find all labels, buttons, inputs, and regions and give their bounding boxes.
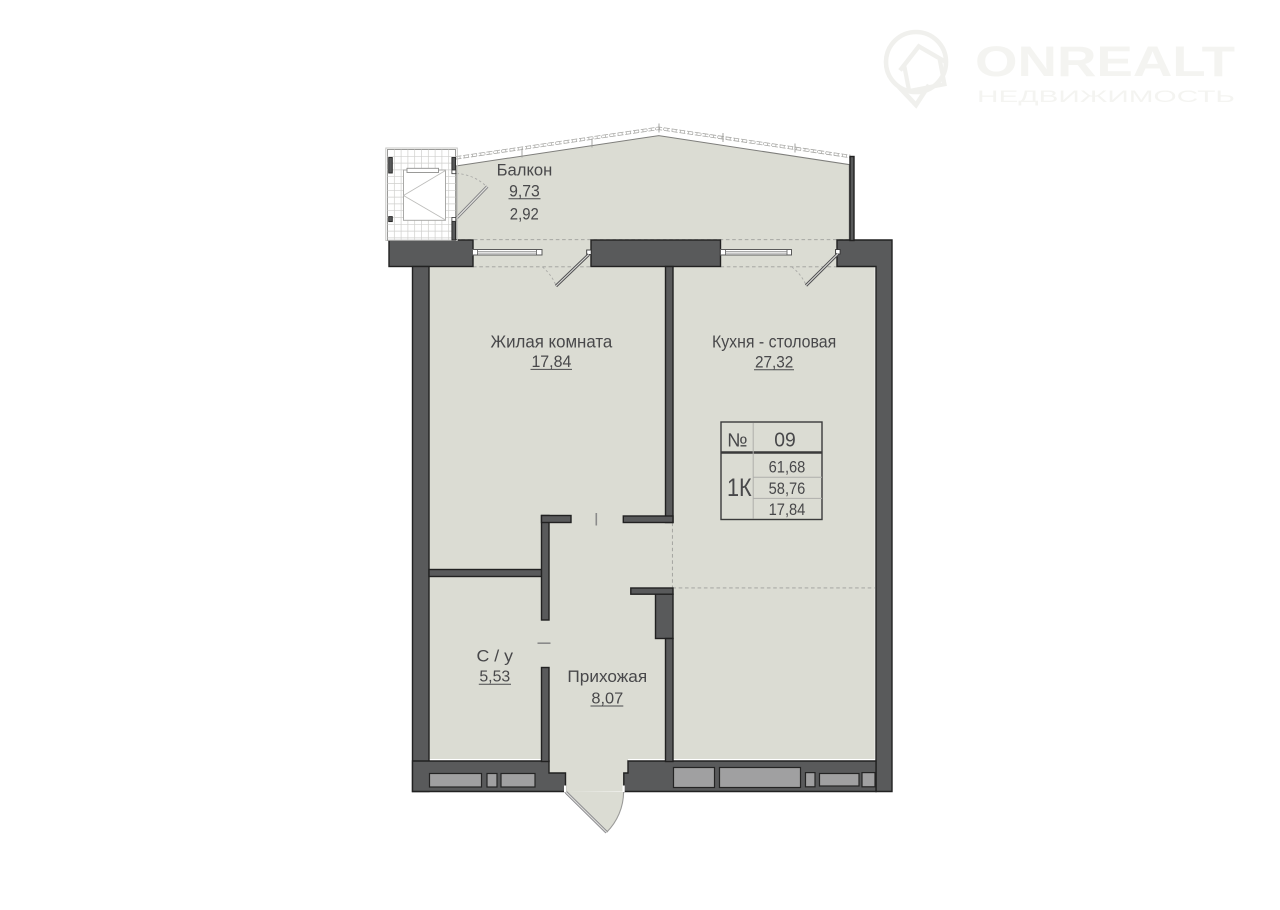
svg-text:2,92: 2,92 — [510, 206, 539, 224]
svg-text:9,73: 9,73 — [509, 183, 540, 201]
svg-text:№: № — [727, 431, 747, 452]
svg-text:17,84: 17,84 — [531, 353, 571, 371]
svg-text:61,68: 61,68 — [769, 459, 806, 477]
svg-text:ONREALT: ONREALT — [975, 38, 1235, 86]
svg-text:НЕДВИЖИМОСТЬ: НЕДВИЖИМОСТЬ — [977, 88, 1235, 106]
svg-text:1К: 1К — [727, 474, 752, 502]
svg-text:17,84: 17,84 — [769, 501, 806, 519]
svg-text:Кухня - столовая: Кухня - столовая — [712, 332, 836, 352]
svg-text:27,32: 27,32 — [755, 353, 793, 371]
svg-text:09: 09 — [774, 430, 796, 452]
svg-text:5,53: 5,53 — [479, 669, 510, 686]
svg-text:8,07: 8,07 — [591, 690, 623, 707]
svg-text:Балкон: Балкон — [497, 162, 553, 180]
svg-text:58,76: 58,76 — [769, 480, 806, 498]
svg-text:Жилая комната: Жилая комната — [491, 331, 613, 351]
svg-text:С / у: С / у — [477, 648, 514, 666]
svg-text:Прихожая: Прихожая — [567, 667, 647, 686]
